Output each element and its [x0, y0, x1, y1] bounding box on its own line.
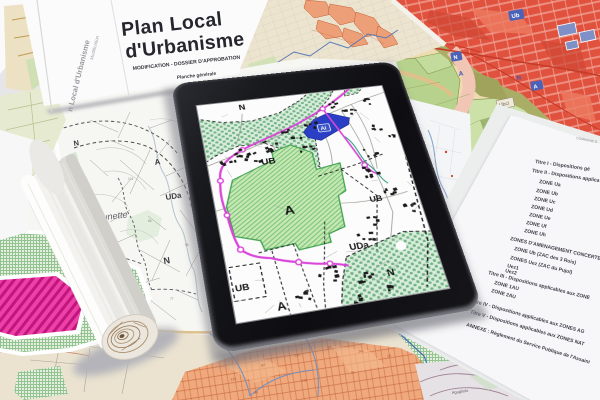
svg-text:170: 170: [301, 378, 307, 383]
svg-text:132: 132: [294, 353, 300, 358]
svg-text:95: 95: [254, 390, 258, 394]
svg-text:44: 44: [350, 370, 354, 374]
svg-text:87: 87: [261, 363, 265, 367]
svg-text:241: 241: [358, 349, 364, 354]
svg-text:214: 214: [230, 377, 236, 382]
svg-text:124: 124: [128, 177, 134, 181]
svg-text:18: 18: [387, 354, 391, 358]
svg-text:86: 86: [148, 219, 152, 223]
svg-text:77: 77: [170, 297, 174, 301]
svg-text:58: 58: [185, 243, 189, 247]
